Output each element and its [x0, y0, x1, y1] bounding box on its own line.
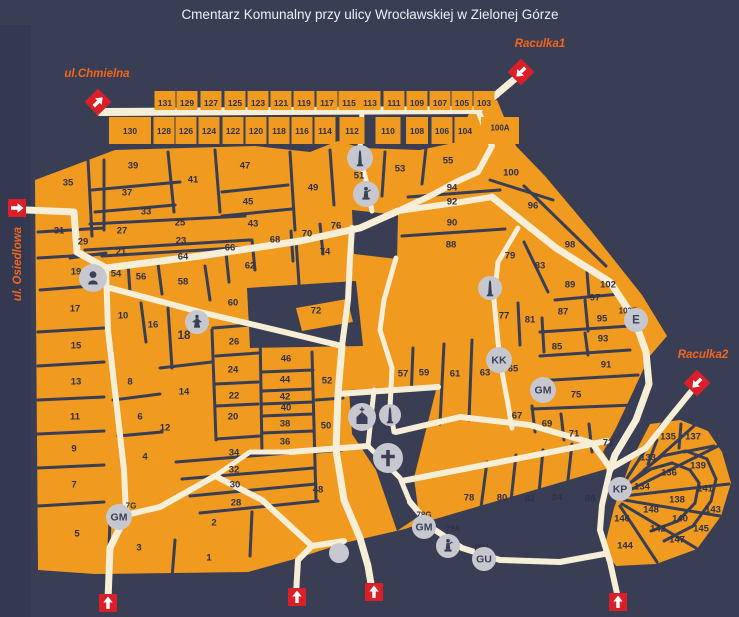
section-label[interactable]: 40 — [281, 403, 292, 414]
statue-base — [362, 198, 369, 200]
section-label[interactable]: 137 — [685, 432, 701, 443]
icon-letters: GM — [111, 512, 128, 524]
street-label: Raculka2 — [678, 349, 729, 361]
obelisk-icon — [478, 276, 502, 300]
cemetery-map: 1311291271251231211191171151131111091071… — [0, 0, 739, 617]
section-divider — [262, 370, 313, 372]
section-label[interactable]: 81 — [525, 315, 536, 326]
section-label[interactable]: 18 — [178, 330, 191, 342]
section-label[interactable]: 89 — [565, 280, 576, 291]
section-label[interactable]: 136 — [661, 468, 677, 479]
marker-gm: GM — [412, 515, 436, 539]
section-label[interactable]: 115 — [342, 98, 356, 108]
section-divider — [250, 512, 252, 556]
section-label[interactable]: 88 — [446, 240, 457, 251]
entrance-marker[interactable] — [609, 593, 627, 611]
section-divider — [262, 414, 313, 416]
section-label[interactable]: 100A — [490, 124, 509, 133]
section-label[interactable]: 102 — [600, 280, 616, 291]
section-label[interactable]: 78 — [464, 493, 475, 504]
section-label[interactable]: 11 — [70, 412, 81, 423]
street-label: ul. Osiedlowa — [12, 226, 24, 301]
section-label[interactable]: 15 — [71, 341, 82, 352]
section-label[interactable]: 72 — [311, 306, 322, 317]
section-label[interactable]: 41 — [188, 175, 199, 186]
section-label[interactable]: 109 — [410, 98, 424, 108]
section-label[interactable]: 128 — [157, 126, 171, 136]
section-label[interactable]: 148 — [643, 505, 659, 516]
statue-head — [446, 539, 450, 543]
section-label[interactable]: 117 — [320, 98, 334, 108]
section-label[interactable]: 122 — [226, 126, 240, 136]
section-label[interactable]: 133 — [640, 453, 656, 464]
section-label[interactable]: 110 — [381, 126, 395, 136]
section-label[interactable]: 6 — [137, 412, 142, 423]
obelisk-base — [357, 165, 363, 167]
section-label[interactable]: 53 — [395, 164, 406, 175]
section-label[interactable]: 113 — [363, 98, 377, 108]
section-label[interactable]: 111 — [387, 98, 401, 108]
section-label[interactable]: 5 — [74, 529, 80, 540]
section-label[interactable]: 66 — [225, 243, 236, 254]
section-label[interactable]: 61 — [450, 369, 461, 380]
street-label: ul.Chmielna — [64, 68, 130, 80]
section-label[interactable]: 75 — [571, 390, 582, 401]
obelisk-icon — [347, 145, 373, 171]
section-label[interactable]: 129 — [180, 98, 194, 108]
section-label[interactable]: 55 — [443, 156, 454, 167]
section-label[interactable]: 13 — [71, 377, 82, 388]
marker-e: E — [624, 308, 648, 332]
section-label[interactable]: 125 — [228, 98, 242, 108]
section-label[interactable]: 45 — [243, 197, 254, 208]
section-label[interactable]: 121 — [274, 98, 288, 108]
section-label[interactable]: 28 — [231, 498, 242, 509]
section-label[interactable]: 105 — [455, 98, 469, 108]
section-label[interactable]: 79 — [505, 251, 516, 262]
section-label[interactable]: 52 — [322, 376, 333, 387]
section-label[interactable]: 32 — [229, 465, 240, 476]
obelisk-base — [487, 295, 493, 297]
statue-body — [364, 191, 369, 198]
section-label[interactable]: 46 — [281, 354, 292, 365]
section-label[interactable]: 56 — [136, 272, 147, 283]
section-label[interactable]: 134 — [634, 482, 651, 493]
section-label[interactable]: 80 — [497, 493, 508, 504]
section-label[interactable]: 60 — [228, 298, 239, 309]
entrance-marker[interactable] — [365, 583, 383, 601]
section-label[interactable]: 90 — [447, 218, 458, 229]
marker-kp: KP — [608, 477, 632, 501]
section-label[interactable]: 47 — [240, 161, 251, 172]
section-label[interactable]: 51 — [354, 171, 365, 182]
section-label[interactable]: 25 — [175, 218, 186, 229]
plain-icon — [329, 543, 349, 563]
section-label[interactable]: 100 — [503, 168, 519, 179]
section-label[interactable]: 64 — [178, 252, 189, 263]
section-label[interactable]: 33 — [141, 207, 152, 218]
section-label[interactable]: 73 — [603, 438, 614, 449]
section-label[interactable]: 69 — [542, 419, 553, 430]
section-label[interactable]: 29 — [78, 237, 89, 248]
icon-circle — [329, 543, 349, 563]
section-label[interactable]: 123 — [251, 98, 265, 108]
section-label[interactable]: 146 — [614, 514, 630, 525]
section-label[interactable]: 35 — [63, 178, 74, 189]
angel-base — [194, 326, 200, 328]
section-label[interactable]: 86 — [585, 494, 596, 505]
section-label[interactable]: 39 — [128, 161, 139, 172]
section-label[interactable]: 24 — [228, 365, 239, 376]
section-label[interactable]: 77 — [499, 311, 510, 322]
section-label[interactable]: 70 — [302, 229, 313, 240]
cross-icon — [373, 443, 403, 473]
section-label[interactable]: 131 — [158, 98, 172, 108]
section-label[interactable]: 127 — [204, 98, 218, 108]
section-label[interactable]: 143 — [705, 505, 721, 516]
section-label[interactable]: 42 — [280, 392, 291, 403]
section-divider — [518, 303, 520, 345]
section-label[interactable]: 82 — [525, 494, 536, 505]
section-label[interactable]: 130 — [123, 126, 137, 136]
marker-gm: GM — [530, 377, 556, 403]
section-label[interactable]: 57 — [398, 369, 409, 380]
page-title: Cmentarz Komunalny przy ulicy Wrocławski… — [181, 7, 558, 22]
section-label[interactable]: 107 — [433, 98, 447, 108]
icon-letters: KK — [491, 355, 507, 367]
section-label[interactable]: 144 — [617, 541, 634, 552]
section-label[interactable]: 62 — [245, 261, 256, 272]
section-label[interactable]: 43 — [248, 219, 259, 230]
section-label[interactable]: 20 — [228, 412, 239, 423]
icon-letters: GU — [476, 554, 492, 566]
section-label[interactable]: 74 — [320, 247, 331, 258]
section-label[interactable]: 17 — [70, 304, 81, 315]
section-label[interactable]: 76 — [331, 221, 342, 232]
section-label[interactable]: 31 — [54, 226, 65, 237]
section-label[interactable]: 98 — [565, 240, 576, 251]
section-label[interactable]: 140 — [672, 514, 688, 525]
section-label[interactable]: 67 — [512, 411, 523, 422]
section-label[interactable]: 138 — [669, 495, 685, 506]
section-label[interactable]: 9 — [71, 444, 76, 455]
section-divider — [542, 318, 544, 352]
cemetery-map-page: 1311291271251231211191171151131111091071… — [0, 0, 739, 617]
section-label[interactable]: 30 — [230, 480, 241, 491]
section-label[interactable]: 36 — [280, 437, 291, 448]
section-label[interactable]: 78A — [446, 525, 461, 534]
section-label[interactable]: 37 — [122, 188, 133, 199]
section-label[interactable]: 118 — [272, 126, 286, 136]
section-divider — [262, 431, 313, 433]
section-label[interactable]: 124 — [202, 126, 216, 136]
statue-head — [364, 187, 368, 191]
section-label[interactable]: 26 — [229, 337, 240, 348]
section-label[interactable]: 126 — [179, 126, 193, 136]
section-label[interactable]: 16 — [148, 320, 159, 331]
section-label[interactable]: 2 — [211, 518, 216, 529]
section-label[interactable]: 12 — [160, 423, 171, 434]
section-label[interactable]: 10 — [118, 311, 129, 322]
angel-head — [195, 315, 198, 318]
icon-letters: GM — [535, 385, 552, 397]
section-label[interactable]: 87 — [558, 307, 569, 318]
obelisk-icon — [379, 404, 401, 426]
section-label[interactable]: 27 — [117, 226, 128, 237]
section-label[interactable]: 4 — [142, 452, 148, 463]
statue-icon — [436, 534, 460, 558]
section-label[interactable]: 59 — [419, 368, 430, 379]
section-label[interactable]: 8 — [127, 377, 132, 388]
section-label[interactable]: 96 — [528, 201, 539, 212]
marker-gm: GM — [106, 504, 132, 530]
section-divider — [216, 382, 258, 384]
section-label[interactable]: 95 — [597, 314, 608, 325]
section-label[interactable]: 44 — [280, 375, 291, 386]
section-label[interactable]: 23 — [176, 236, 187, 247]
section-label[interactable]: 68 — [270, 235, 281, 246]
section-label[interactable]: 104 — [458, 126, 472, 136]
section-divider — [291, 231, 293, 261]
bust-icon — [79, 264, 107, 292]
walkway-path — [100, 110, 478, 112]
section-label[interactable]: 58 — [178, 277, 189, 288]
street-label: Raculka1 — [515, 38, 566, 50]
entrance-marker[interactable] — [8, 199, 26, 217]
section-label[interactable]: 54 — [111, 269, 122, 280]
section-label[interactable]: 135 — [660, 432, 677, 443]
angel-icon — [185, 310, 209, 334]
section-label[interactable]: 7 — [71, 480, 76, 491]
bust-head — [90, 271, 97, 278]
section-label[interactable]: 114 — [318, 126, 332, 136]
section-label[interactable]: 94 — [447, 183, 458, 194]
icon-letters: KP — [613, 484, 628, 496]
section-label[interactable]: 22 — [229, 391, 240, 402]
chapel-icon — [348, 403, 376, 431]
statue-base — [444, 550, 451, 552]
section-label[interactable]: 84 — [552, 493, 563, 504]
section-label[interactable]: 147 — [669, 535, 685, 546]
section-divider — [216, 404, 258, 406]
section-label[interactable]: 71 — [569, 429, 580, 440]
section-label[interactable]: 49 — [308, 183, 319, 194]
section-label[interactable]: 91 — [601, 360, 612, 371]
left-street-strip — [0, 25, 31, 617]
section-label[interactable]: 14 — [179, 387, 190, 398]
section-label[interactable]: 21 — [116, 247, 127, 258]
section-label[interactable]: 97 — [590, 293, 601, 304]
section-label[interactable]: 85 — [552, 342, 563, 353]
section-label[interactable]: 145 — [693, 524, 710, 535]
obelisk-base — [387, 422, 393, 424]
section-label[interactable]: 38 — [280, 419, 291, 430]
section-label[interactable]: 83 — [535, 261, 546, 272]
marker-kk: KK — [486, 347, 512, 373]
section-label[interactable]: 141 — [697, 484, 714, 495]
section-label[interactable]: 48 — [313, 485, 324, 496]
marker-gu: GU — [472, 547, 496, 571]
section-label[interactable]: 108 — [410, 126, 424, 136]
section-label[interactable]: 142 — [650, 524, 666, 535]
section-divider — [587, 272, 589, 297]
section-label[interactable]: 1 — [206, 553, 212, 564]
entrance-marker[interactable] — [99, 594, 117, 612]
statue-icon — [353, 181, 379, 207]
icon-letters: E — [632, 315, 640, 327]
icon-letters: GM — [416, 522, 433, 534]
section-label[interactable]: 106 — [435, 126, 449, 136]
section-label[interactable]: 34 — [229, 448, 240, 459]
section-label[interactable]: 120 — [249, 126, 263, 136]
section-label[interactable]: 139 — [690, 461, 706, 472]
section-label[interactable]: 92 — [447, 197, 458, 208]
section-label[interactable]: 93 — [598, 334, 609, 345]
section-label[interactable]: 50 — [321, 421, 332, 432]
section-label[interactable]: 116 — [295, 126, 309, 136]
entrance-marker[interactable] — [288, 588, 306, 606]
section-label[interactable]: 103 — [477, 98, 491, 108]
section-label[interactable]: 119 — [297, 98, 311, 108]
statue-body — [446, 543, 451, 550]
section-label[interactable]: 3 — [136, 543, 141, 554]
section-label[interactable]: 112 — [345, 126, 359, 136]
section-label[interactable]: 63 — [480, 368, 491, 379]
